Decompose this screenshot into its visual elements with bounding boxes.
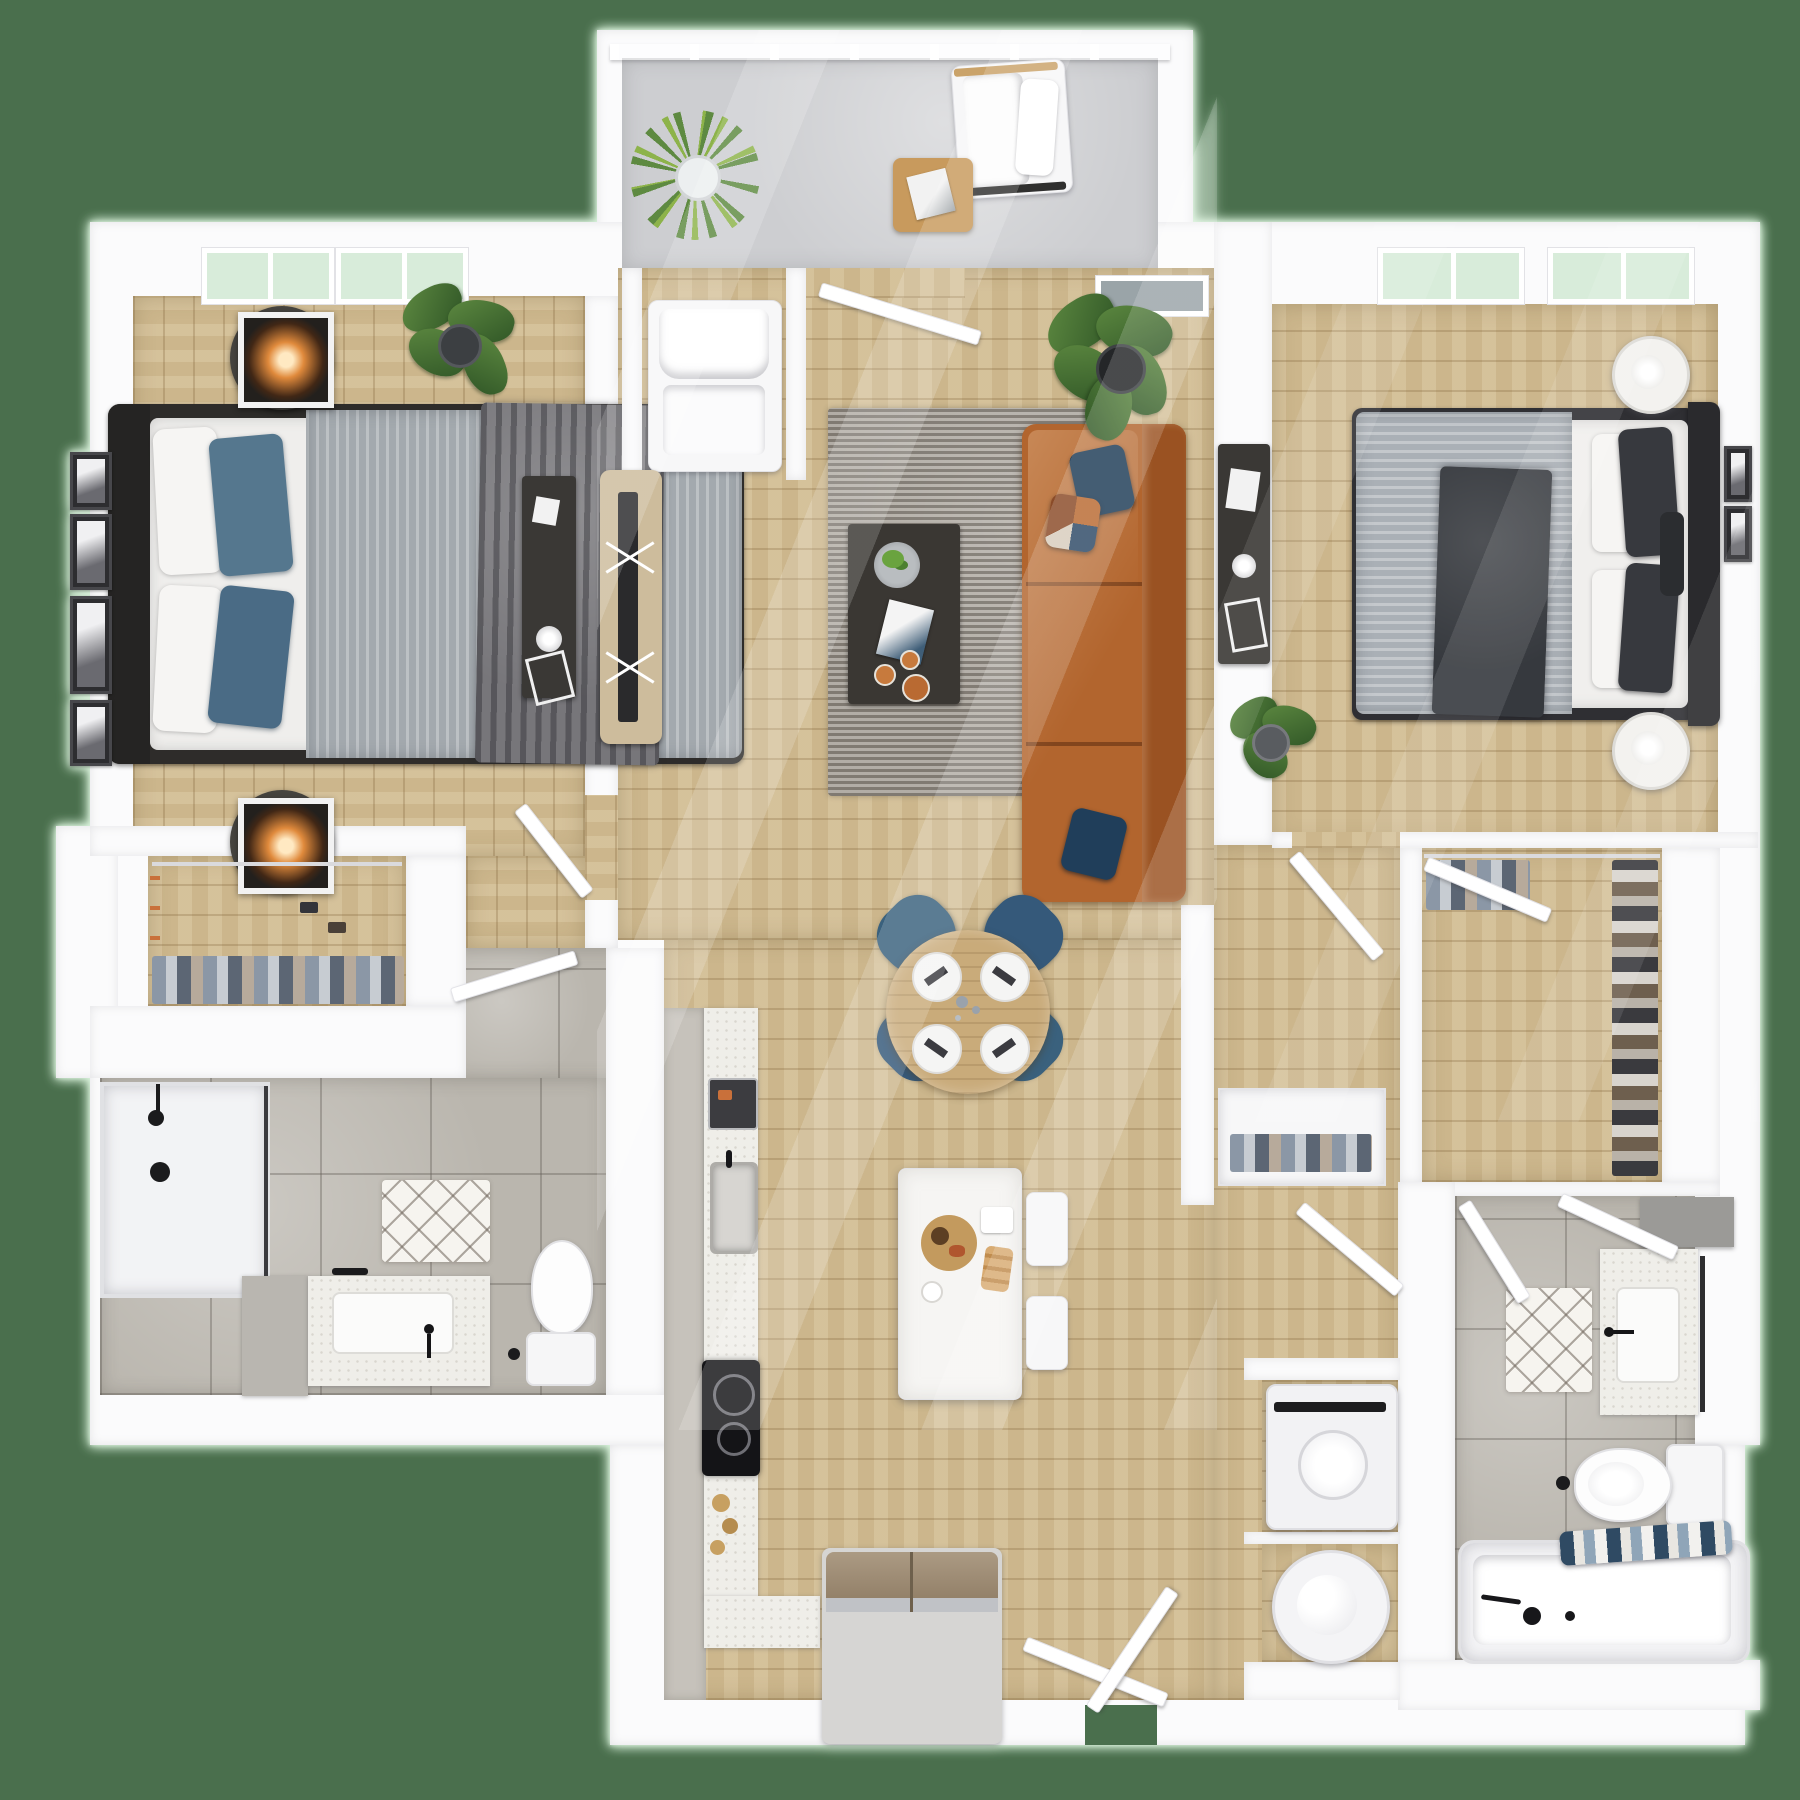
sofa-back bbox=[1142, 424, 1186, 902]
accent-chair-back bbox=[659, 309, 769, 379]
bed2-wall-frame-1 bbox=[1724, 446, 1752, 502]
side-table-magazine bbox=[906, 168, 955, 220]
window-mullion bbox=[1621, 253, 1626, 299]
desk-decor-paper bbox=[525, 650, 575, 706]
laundry-bottom-wall bbox=[1244, 1662, 1400, 1700]
place-setting-3 bbox=[912, 1024, 962, 1074]
laundry-mid-shelf bbox=[1244, 1532, 1400, 1544]
closet1-hook-2 bbox=[150, 906, 160, 910]
bath1-shower bbox=[100, 1082, 270, 1298]
tv-screen bbox=[618, 492, 638, 722]
tub-faucet-dot-2 bbox=[1565, 1611, 1575, 1621]
kitchen-cooktop bbox=[702, 1360, 760, 1476]
washer-control-panel bbox=[1274, 1402, 1386, 1412]
bed2-desk bbox=[1218, 444, 1270, 664]
closet1-clothes bbox=[152, 956, 404, 1004]
refrigerator bbox=[822, 1548, 1002, 1744]
bath1-vanity-counter bbox=[308, 1276, 490, 1386]
wall-hall-west bbox=[1181, 905, 1214, 1205]
bed1-wall-frame-4 bbox=[70, 700, 112, 766]
bedroom2-window-2 bbox=[1548, 248, 1694, 304]
bath2-toilet-bowl bbox=[1574, 1448, 1672, 1522]
bed2-headboard bbox=[1688, 402, 1720, 726]
desk-decor-flower bbox=[536, 626, 562, 652]
bed2-lamp-top bbox=[1612, 336, 1690, 414]
bed1-pillow-blue-bottom bbox=[207, 585, 295, 730]
island-stool-1 bbox=[1026, 1192, 1068, 1266]
island-bread bbox=[980, 1245, 1014, 1292]
closet1-rod bbox=[152, 862, 402, 866]
bed2-door-gap bbox=[1292, 832, 1400, 848]
fridge-door-seam bbox=[910, 1552, 913, 1612]
balcony-railing bbox=[610, 44, 1170, 60]
floor-plan bbox=[0, 0, 1800, 1800]
accent-chair-seat bbox=[663, 385, 765, 455]
closet1-right-wall bbox=[406, 856, 466, 1006]
washer bbox=[1266, 1384, 1398, 1530]
desk-decor-frame bbox=[532, 496, 560, 526]
coffee-table bbox=[848, 524, 960, 704]
bed1-lamp-top bbox=[238, 312, 334, 408]
bed1-wall-frame-3 bbox=[70, 596, 112, 694]
place-setting-1 bbox=[912, 952, 962, 1002]
closet1-shoes-2 bbox=[328, 922, 346, 933]
bed2-plant-pot bbox=[1252, 724, 1290, 762]
coffee-table-cup-1 bbox=[874, 664, 896, 686]
kitchen-gray-floor bbox=[664, 1008, 706, 1700]
bed2-lamp-bottom bbox=[1612, 712, 1690, 790]
island-cutting-board bbox=[921, 1215, 977, 1271]
island-plate bbox=[981, 1207, 1013, 1233]
coffee-table-cup-3 bbox=[902, 674, 930, 702]
bed1-wall-frame-2 bbox=[70, 514, 112, 590]
living-plant-pot bbox=[1096, 344, 1146, 394]
bath2-mat bbox=[1506, 1288, 1592, 1392]
bath1-sink bbox=[332, 1292, 454, 1354]
kitchen-utensil-3 bbox=[710, 1540, 725, 1555]
bed2-desk-art bbox=[1225, 468, 1260, 512]
laundry-top-wall bbox=[1244, 1358, 1400, 1380]
window-mullion bbox=[268, 253, 273, 299]
floor-plan-stage bbox=[0, 0, 1800, 1800]
bath1-faucet bbox=[424, 1324, 434, 1334]
balcony-plant-pot bbox=[675, 155, 721, 201]
bath1-east-wall bbox=[606, 948, 664, 1395]
closet2-west-wall bbox=[1400, 848, 1422, 1182]
bedroom2-window-1 bbox=[1378, 248, 1524, 304]
bed1-headboard bbox=[108, 404, 150, 764]
bedroom1-window-1 bbox=[202, 248, 334, 304]
shower-control bbox=[150, 1162, 170, 1182]
island-stool-2 bbox=[1026, 1296, 1068, 1370]
bed1-lamp-bottom bbox=[238, 798, 334, 894]
kitchen-sink bbox=[710, 1162, 758, 1254]
bath2-toilet-tank bbox=[1666, 1444, 1724, 1526]
kitchen-utensil-2 bbox=[722, 1518, 738, 1534]
leather-sofa bbox=[1022, 424, 1186, 902]
sofa-pillow-pattern bbox=[1044, 492, 1102, 553]
bed2-desk-frame bbox=[1224, 597, 1268, 652]
tv-console bbox=[600, 470, 662, 744]
bed1-plant-pot bbox=[438, 324, 482, 368]
lounge-chair-pillow bbox=[1015, 78, 1060, 176]
bed1-wall-frame-1 bbox=[70, 452, 112, 510]
closet1-bottom-wall bbox=[90, 1006, 466, 1078]
bed1-pillow-blue-top bbox=[208, 433, 294, 577]
bed1-desk bbox=[522, 476, 576, 698]
water-heater bbox=[1272, 1550, 1390, 1664]
washer-lid bbox=[1298, 1430, 1368, 1500]
bed2-desk-flower bbox=[1232, 554, 1256, 578]
linen-items bbox=[1230, 1134, 1372, 1172]
kitchen-coffee-maker bbox=[708, 1078, 758, 1130]
window-mullion bbox=[1451, 253, 1456, 299]
place-setting-2 bbox=[980, 952, 1030, 1002]
island-mug bbox=[921, 1281, 943, 1303]
bath1-faucet-stem bbox=[427, 1334, 431, 1358]
bath1-vanity-cabinet bbox=[242, 1276, 308, 1396]
window-mullion bbox=[402, 253, 407, 299]
bath1-flush-button bbox=[508, 1348, 520, 1360]
hall-linen-niche bbox=[1218, 1088, 1386, 1186]
place-setting-4 bbox=[980, 1024, 1030, 1074]
bath2-bottom-wall bbox=[1398, 1660, 1760, 1710]
bath2-mirror-edge bbox=[1700, 1256, 1705, 1412]
coffee-table-cup-2 bbox=[900, 650, 920, 670]
bath1-toilet-tank bbox=[526, 1332, 596, 1386]
bath2-west-wall bbox=[1398, 1182, 1455, 1662]
kitchen-island bbox=[898, 1168, 1022, 1400]
closet1-shoes-1 bbox=[300, 902, 318, 913]
bath2-sink bbox=[1616, 1287, 1680, 1383]
closet2-east-wall bbox=[1662, 848, 1720, 1182]
bath1-towel-bar bbox=[332, 1268, 368, 1275]
balcony-side-table bbox=[893, 158, 973, 232]
kitchen-utensil-1 bbox=[712, 1494, 730, 1512]
closet2-shoe-rack bbox=[1612, 860, 1658, 1176]
closet2-rod bbox=[1424, 854, 1660, 858]
bath2-faucet-stem bbox=[1612, 1330, 1634, 1334]
bed2-wall-frame-2 bbox=[1724, 506, 1752, 562]
closet1-hook-3 bbox=[150, 936, 160, 940]
accent-chair bbox=[648, 300, 782, 472]
table-centerpiece bbox=[956, 996, 968, 1008]
bath2-vanity bbox=[1600, 1249, 1698, 1415]
nook-wall-right bbox=[786, 268, 806, 480]
kitchen-faucet bbox=[726, 1150, 732, 1168]
kitchen-counter-corner bbox=[704, 1596, 820, 1648]
bath2-flush-button bbox=[1556, 1476, 1570, 1490]
bed2-throw bbox=[1432, 466, 1553, 718]
tub-faucet-dot-1 bbox=[1523, 1607, 1541, 1625]
closet1-hook-1 bbox=[150, 876, 160, 880]
coffee-table-greens bbox=[882, 550, 904, 568]
dining-table bbox=[886, 930, 1050, 1094]
nook-wall-left bbox=[622, 268, 642, 480]
shower-hose bbox=[156, 1084, 160, 1114]
bath1-toilet-bowl bbox=[531, 1240, 593, 1334]
bed2-lumbar-pillow bbox=[1660, 512, 1684, 596]
bath1-mat bbox=[382, 1180, 490, 1262]
shower-glass-edge bbox=[264, 1086, 268, 1294]
